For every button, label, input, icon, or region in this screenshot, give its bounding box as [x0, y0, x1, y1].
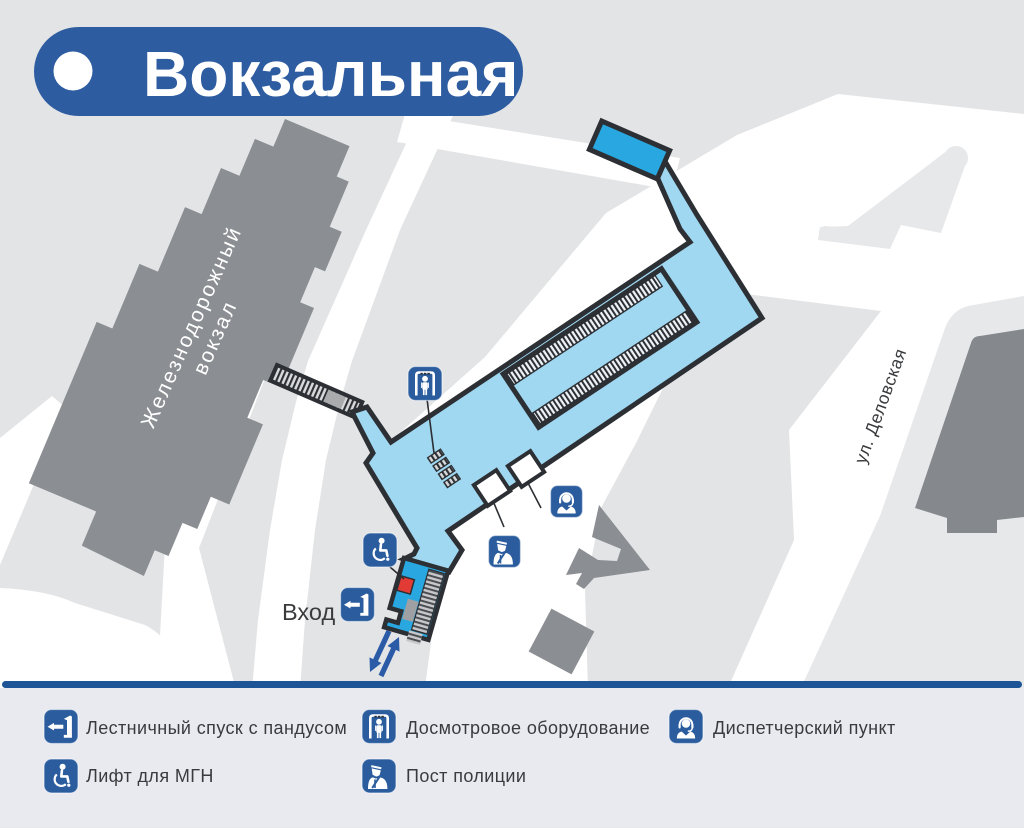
svg-text:Лестничный спуск с пандусом: Лестничный спуск с пандусом [86, 718, 347, 738]
svg-text:Диспетчерский пункт: Диспетчерский пункт [713, 718, 896, 738]
svg-text:Досмотровое оборудование: Досмотровое оборудование [406, 718, 650, 738]
svg-text:Вход: Вход [282, 599, 335, 625]
svg-text:Пост полиции: Пост полиции [406, 766, 526, 786]
svg-text:Вокзальная: Вокзальная [143, 38, 519, 110]
svg-text:Лифт для МГН: Лифт для МГН [86, 766, 214, 786]
